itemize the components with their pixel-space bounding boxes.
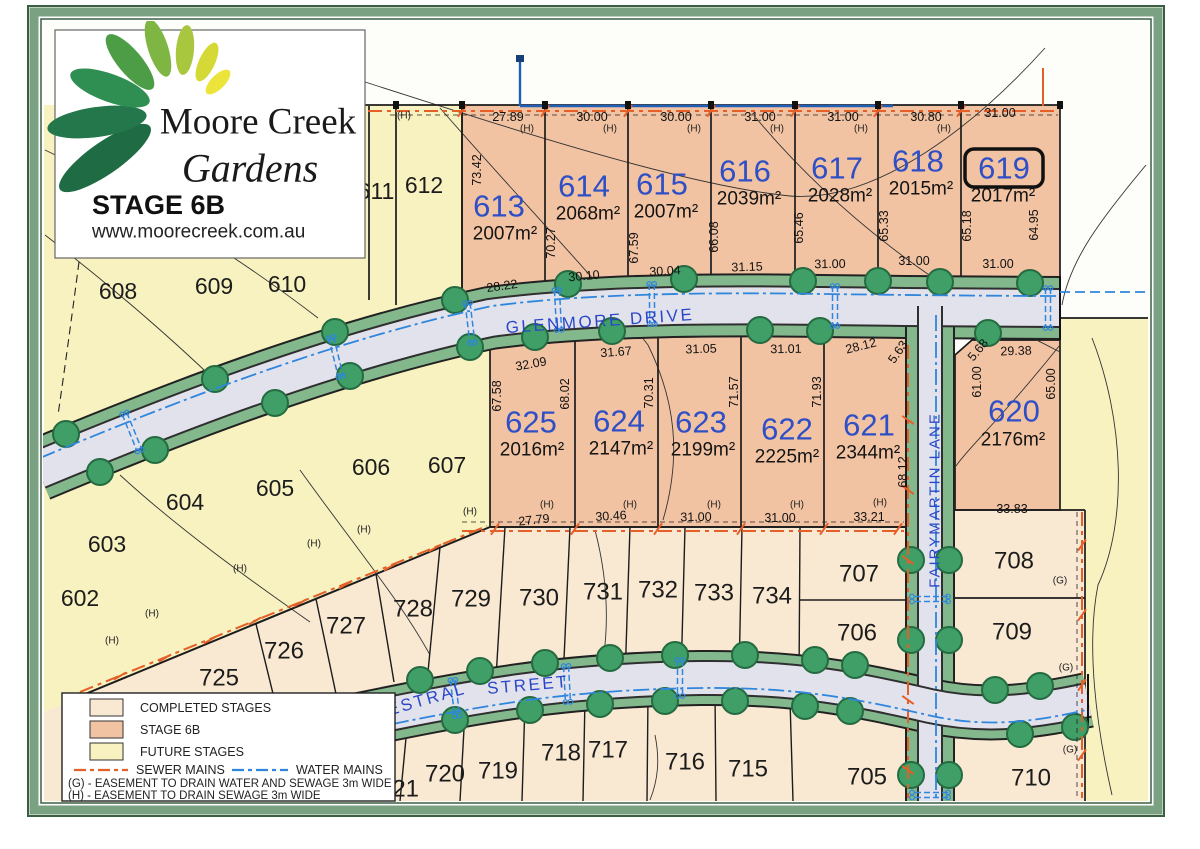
tree-icon [732, 642, 758, 668]
measurement-label: 65.00 [1044, 368, 1058, 399]
easement-label-h: (H) [770, 124, 784, 135]
lot-number-621: 621 [843, 408, 895, 443]
tree-icon [936, 762, 962, 788]
measurement-label: 67.58 [490, 380, 504, 411]
measurement-label: 30.80 [910, 110, 941, 124]
tree-icon [652, 688, 678, 714]
tree-icon [142, 437, 168, 463]
lot-number-608: 608 [99, 278, 137, 304]
legend-easement-g: (G) - EASEMENT TO DRAIN WATER AND SEWAGE… [68, 778, 392, 790]
easement-label-h: (H) [707, 500, 721, 511]
lot-number-603: 603 [88, 531, 126, 557]
lot-number-728: 728 [393, 596, 433, 623]
legend-label-future: FUTURE STAGES [140, 745, 244, 759]
measurement-label: 70.27 [544, 227, 558, 258]
tree-icon [587, 691, 613, 717]
measurement-label: 70.31 [642, 377, 656, 408]
survey-mark [1057, 101, 1063, 109]
lot-area-620: 2176m² [981, 430, 1045, 451]
tree-icon [747, 317, 773, 343]
lot-number-708: 708 [994, 548, 1034, 575]
lot-number-606: 606 [352, 454, 390, 480]
measurement-label: 31.00 [764, 511, 795, 525]
lot-number-725: 725 [199, 665, 239, 692]
measurement-label: 65.18 [960, 210, 974, 241]
lot-number-726: 726 [264, 638, 304, 665]
tree-icon [790, 268, 816, 294]
lot-area-617: 2028m² [808, 186, 872, 207]
lot-number-729: 729 [451, 586, 491, 613]
lot-number-610: 610 [268, 271, 306, 297]
legend: COMPLETED STAGES STAGE 6B FUTURE STAGES … [62, 693, 395, 802]
lot-number-719: 719 [478, 758, 518, 785]
measurement-label: 61.00 [970, 366, 984, 397]
tree-icon [442, 707, 468, 733]
lot-number-717: 717 [588, 737, 628, 764]
measurement-label: 67.59 [627, 232, 641, 263]
tree-icon [1062, 714, 1088, 740]
lot-number-622: 622 [761, 412, 813, 447]
lot-number-706: 706 [837, 620, 877, 647]
measurement-label: 30.10 [568, 268, 600, 285]
legend-swatch-future [90, 743, 123, 760]
lot-area-623: 2199m² [671, 440, 735, 461]
easement-label-h: (H) [520, 124, 534, 135]
survey-mark [459, 101, 465, 109]
lot-area-615: 2007m² [634, 202, 698, 223]
easement-label-g: (G) [1059, 663, 1073, 674]
measurement-label: 31.05 [685, 341, 717, 356]
lot-number-707: 707 [839, 561, 879, 588]
easement-label-h: (H) [463, 507, 477, 518]
tree-icon [792, 693, 818, 719]
easement-label-h: (H) [105, 636, 119, 647]
easement-label-h: (H) [623, 500, 637, 511]
lot-number-710: 710 [1011, 765, 1051, 792]
legend-label-water: WATER MAINS [296, 763, 383, 777]
lot-number-705: 705 [847, 764, 887, 791]
lot-number-613: 613 [473, 189, 525, 224]
tree-icon [802, 647, 828, 673]
easement-label-h: (H) [873, 498, 887, 509]
lot-number-615: 615 [636, 167, 688, 202]
lot-number-620: 620 [988, 394, 1040, 429]
subdivision-plan-svg: GLENMORE DRIVE KESTRAL STREET FAIRYMARTI… [0, 0, 1200, 849]
measurement-label: 68.02 [558, 378, 572, 409]
tree-icon [927, 269, 953, 295]
tree-icon [1007, 721, 1033, 747]
easement-label-g: (G) [1063, 745, 1077, 756]
lot-area-621: 2344m² [836, 443, 900, 464]
measurement-label: 30.46 [595, 508, 627, 524]
lot-number-716: 716 [665, 749, 705, 776]
measurement-label: 31.00 [898, 254, 929, 268]
easement-label-h: (H) [397, 111, 411, 122]
easement-label-h: (H) [937, 124, 951, 135]
measurement-label: 64.95 [1027, 209, 1041, 240]
lot-number-616: 616 [719, 154, 771, 189]
lot-number-730: 730 [519, 585, 559, 612]
survey-mark [708, 101, 714, 109]
measurement-label: 31.67 [600, 344, 632, 360]
easement-label-h: (H) [307, 539, 321, 550]
lot-number-614: 614 [558, 169, 610, 204]
lot-area-614: 2068m² [556, 204, 620, 225]
lot-number-619: 619 [978, 151, 1030, 186]
lot-area-618: 2015m² [889, 179, 953, 200]
lot-number-605: 605 [256, 475, 294, 501]
measurement-label: 65.33 [877, 210, 891, 241]
measurement-label: 73.42 [470, 154, 484, 185]
easement-label-h: (H) [687, 124, 701, 135]
website-url: www.moorecreek.com.au [91, 222, 305, 243]
measurement-label: 68.12 [896, 456, 910, 487]
measurement-label: 71.57 [727, 376, 741, 407]
survey-mark [958, 101, 964, 109]
tree-icon [898, 547, 924, 573]
tree-icon [982, 677, 1008, 703]
lot-number-609: 609 [195, 273, 233, 299]
tree-icon [807, 318, 833, 344]
lot-number-715: 715 [728, 756, 768, 783]
easement-label-g: (G) [1053, 576, 1067, 587]
brand-name-line1: Moore Creek [160, 102, 357, 143]
lot-number-731: 731 [583, 579, 623, 606]
tree-icon [532, 650, 558, 676]
legend-swatch-completed [90, 699, 123, 716]
title-block: Moore Creek Gardens STAGE 6B www.moorecr… [45, 16, 365, 258]
measurement-label: 31.00 [814, 257, 846, 272]
lot-number-617: 617 [811, 151, 863, 186]
measurement-label: 65.46 [792, 212, 806, 243]
measurement-label: 31.15 [731, 259, 763, 274]
lot-number-720: 720 [425, 761, 465, 788]
tree-icon [837, 698, 863, 724]
lot-number-734: 734 [752, 583, 792, 610]
lot-number-718: 718 [541, 740, 581, 767]
easement-label-h: (H) [357, 525, 371, 536]
lot-area-624: 2147m² [589, 439, 653, 460]
survey-mark [875, 101, 881, 109]
measurement-label: 31.00 [827, 110, 858, 124]
tree-icon [722, 688, 748, 714]
measurement-label: 29.38 [1000, 343, 1032, 358]
easement-label-h: (H) [790, 500, 804, 511]
tree-icon [842, 652, 868, 678]
measurement-label: 30.00 [660, 110, 691, 124]
lot-number-732: 732 [638, 577, 678, 604]
measurement-label: 30.04 [649, 263, 681, 279]
tree-icon [662, 642, 688, 668]
tree-icon [898, 627, 924, 653]
easement-label-h: (H) [145, 609, 159, 620]
legend-label-completed: COMPLETED STAGES [140, 701, 271, 715]
survey-mark [393, 101, 399, 109]
lot-number-733: 733 [694, 580, 734, 607]
lot-number-607: 607 [428, 452, 466, 478]
map-area: GLENMORE DRIVE KESTRAL STREET FAIRYMARTI… [38, 16, 1149, 802]
lot-number-602: 602 [61, 585, 99, 611]
survey-mark [625, 101, 631, 109]
survey-mark [542, 101, 548, 109]
tree-icon [202, 366, 228, 392]
street-label-fairymartin-lane: FAIRYMARTIN LANE [927, 412, 944, 588]
tree-icon [936, 627, 962, 653]
legend-label-stage6b: STAGE 6B [140, 723, 200, 737]
measurement-label: 31.00 [744, 110, 775, 124]
tree-icon [865, 268, 891, 294]
lot-number-625: 625 [505, 405, 557, 440]
lot-number-709: 709 [992, 619, 1032, 646]
survey-mark [792, 101, 798, 109]
lot-number-604: 604 [166, 489, 205, 515]
tree-icon [87, 459, 113, 485]
measurement-label: 33.83 [996, 502, 1027, 516]
tree-icon [457, 334, 483, 360]
lot-number-623: 623 [675, 405, 727, 440]
lot-area-622: 2225m² [755, 447, 819, 468]
tree-icon [1017, 270, 1043, 296]
measurement-label: 31.01 [770, 342, 802, 357]
subdivision-plan-page: GLENMORE DRIVE KESTRAL STREET FAIRYMARTI… [0, 0, 1200, 849]
measurement-label: 31.00 [680, 510, 712, 525]
measurement-label: 27.89 [492, 110, 523, 124]
easement-label-h: (H) [233, 564, 247, 575]
lot-area-616: 2039m² [717, 189, 781, 210]
measurement-label: 30.00 [576, 110, 607, 124]
lot-number-624: 624 [593, 404, 645, 439]
easement-label-h: (H) [854, 124, 868, 135]
easement-label-h: (H) [603, 124, 617, 135]
legend-label-sewer: SEWER MAINS [136, 763, 225, 777]
legend-swatch-stage6b [90, 721, 123, 738]
measurement-label: 31.00 [984, 106, 1015, 120]
brand-name-line2: Gardens [182, 146, 318, 191]
measurement-label: 31.00 [982, 257, 1013, 271]
measurement-label: 33.21 [853, 510, 884, 524]
tree-icon [442, 287, 468, 313]
lot-number-618: 618 [892, 144, 944, 179]
lot-area-625: 2016m² [500, 440, 564, 461]
tree-icon [262, 390, 288, 416]
tree-icon [1027, 673, 1053, 699]
easement-label-h: (H) [540, 500, 554, 511]
legend-easement-h: (H) - EASEMENT TO DRAIN SEWAGE 3m WIDE [68, 790, 321, 802]
lot-number-612: 612 [405, 172, 443, 198]
measurement-label: 71.93 [810, 376, 824, 407]
lot-number-727: 727 [326, 613, 366, 640]
stage-title: STAGE 6B [92, 190, 225, 220]
measurement-label: 66.08 [707, 221, 721, 252]
tree-icon [597, 645, 623, 671]
lot-area-613: 2007m² [473, 224, 537, 245]
tree-icon [898, 762, 924, 788]
